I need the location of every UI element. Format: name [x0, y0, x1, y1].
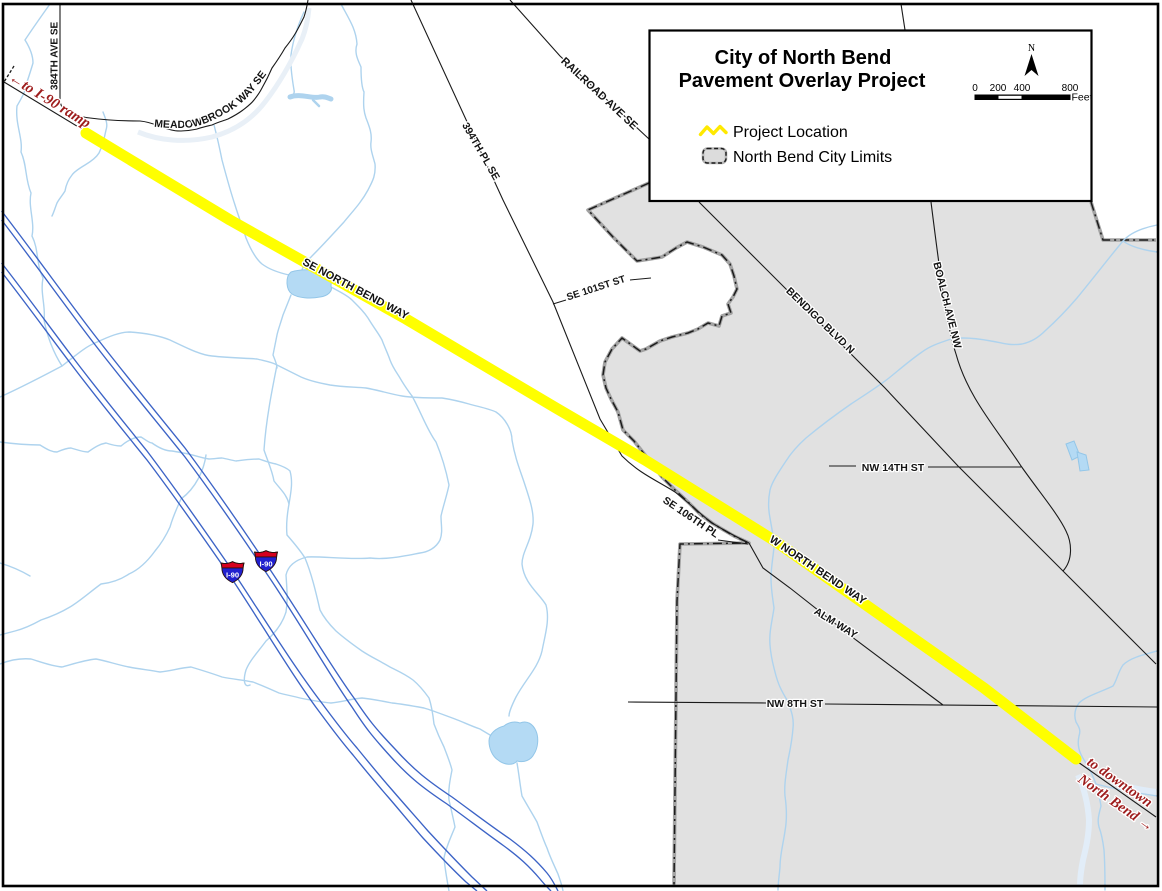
- svg-text:City of North Bend: City of North Bend: [715, 47, 892, 69]
- svg-text:400: 400: [1014, 83, 1031, 94]
- svg-text:I-90: I-90: [259, 560, 272, 569]
- svg-text:0: 0: [972, 83, 978, 94]
- svg-text:384TH AVE SE: 384TH AVE SE: [50, 21, 61, 90]
- svg-text:Feet: Feet: [1072, 92, 1093, 104]
- svg-text:Project Location: Project Location: [733, 124, 848, 141]
- svg-text:NW 8TH ST: NW 8TH ST: [767, 698, 824, 710]
- svg-text:200: 200: [990, 83, 1007, 94]
- svg-text:NW 14TH ST: NW 14TH ST: [862, 462, 925, 474]
- svg-text:N: N: [1028, 43, 1035, 54]
- svg-text:North Bend City Limits: North Bend City Limits: [733, 149, 892, 166]
- svg-text:I-90: I-90: [226, 571, 239, 580]
- svg-text:Pavement Overlay Project: Pavement Overlay Project: [679, 70, 926, 92]
